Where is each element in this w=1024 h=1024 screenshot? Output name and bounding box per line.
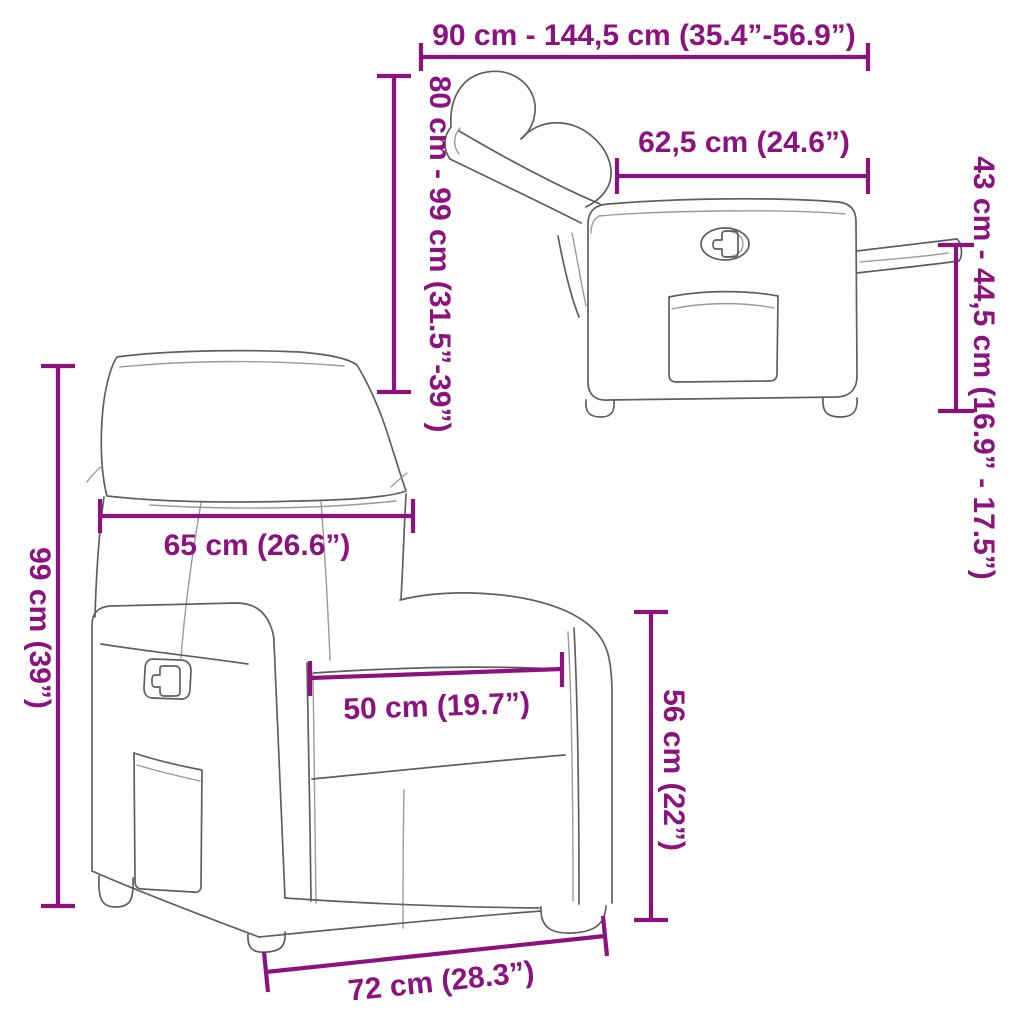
side-back-cushion [521,123,611,207]
front-footrest-seam [403,790,404,928]
dim-label: 99 cm (39”) [23,547,56,709]
front-backrest-fold-left [181,503,201,658]
dim-label: 80 cm - 99 cm (31.5”-39”) [423,76,456,433]
side-body-corner-seam [591,216,599,233]
side-lever-keyhole [713,231,738,257]
dim-footrest-height-range: 43 cm - 44,5 cm (16.9” - 17.5”) [938,156,1000,580]
dim-seat-width: 50 cm (19.7”) [310,652,562,726]
dim-label: 72 cm (28.3”) [347,955,536,1007]
dim-label: 65 cm (26.6”) [164,529,351,562]
side-mechanism-fold-2 [572,233,586,306]
side-footrest-seam [860,253,948,262]
front-left-panel-bottom [92,871,259,937]
front-right-armrest [400,593,612,903]
side-mechanism-fold [558,236,579,317]
front-headrest [101,351,406,502]
dim-line [377,76,411,392]
front-left-panel-inner-edge-2 [313,672,316,903]
dim-armrest-height: 56 cm (22”) [634,612,690,920]
front-chair-drawing [87,351,612,953]
front-base-upper-edge [285,898,539,908]
dim-label: 43 cm - 44,5 cm (16.9” - 17.5”) [967,156,1000,580]
front-backrest-fold-right [321,502,330,660]
side-body-top-seam [599,211,845,216]
product-dimension-diagram: 90 cm - 144,5 cm (35.4”-56.9”) 62,5 cm (… [0,0,1024,1024]
side-pocket-flap [672,304,774,309]
front-right-armrest-inner [574,628,579,904]
side-headrest-cushion [451,71,535,139]
side-foot-left [586,400,614,417]
front-handle-keyhole [152,666,180,696]
side-footrest-bottom [857,261,959,273]
side-backrest-lower-edge [450,159,581,223]
dim-height-reclined-range: 80 cm - 99 cm (31.5”-39”) [377,76,456,433]
dim-height-upright: 99 cm (39”) [23,366,75,906]
side-lever-oval [701,228,749,260]
dimension-annotations: 90 cm - 144,5 cm (35.4”-56.9”) 62,5 cm (… [23,19,1000,1008]
front-base-bottom-edge [259,911,541,937]
dim-overall-depth-range: 90 cm - 144,5 cm (35.4”-56.9”) [421,19,868,71]
front-foot-right [541,906,606,933]
diagram-canvas: 90 cm - 144,5 cm (35.4”-56.9”) 62,5 cm (… [0,0,1024,1024]
front-left-armrest-seam [101,644,248,664]
dim-label: 56 cm (22”) [657,689,690,851]
front-right-armrest-inner-2 [568,632,573,901]
front-seat-front-edge [312,755,565,779]
dim-line [617,158,868,194]
front-headrest-corner-mark-left [87,466,102,482]
front-left-panel-inner-edge [307,663,311,901]
dim-label: 50 cm (19.7”) [343,687,531,726]
side-body-panel [588,199,857,400]
front-handle-outer [144,659,191,699]
dim-body-depth: 62,5 cm (24.6”) [617,126,868,194]
side-pocket [669,292,778,382]
side-foot-right [823,398,857,417]
side-lever-oval-inner [725,231,743,257]
dim-base-width: 72 cm (28.3”) [264,916,607,1008]
dim-label: 62,5 cm (24.6”) [638,126,850,159]
front-backrest-right-edge [401,494,406,599]
side-backrest-seam [459,131,600,204]
side-chair-drawing [445,71,962,417]
front-headrest-top-seam [120,362,344,367]
dim-label: 90 cm - 144,5 cm (35.4”-56.9”) [432,19,856,52]
